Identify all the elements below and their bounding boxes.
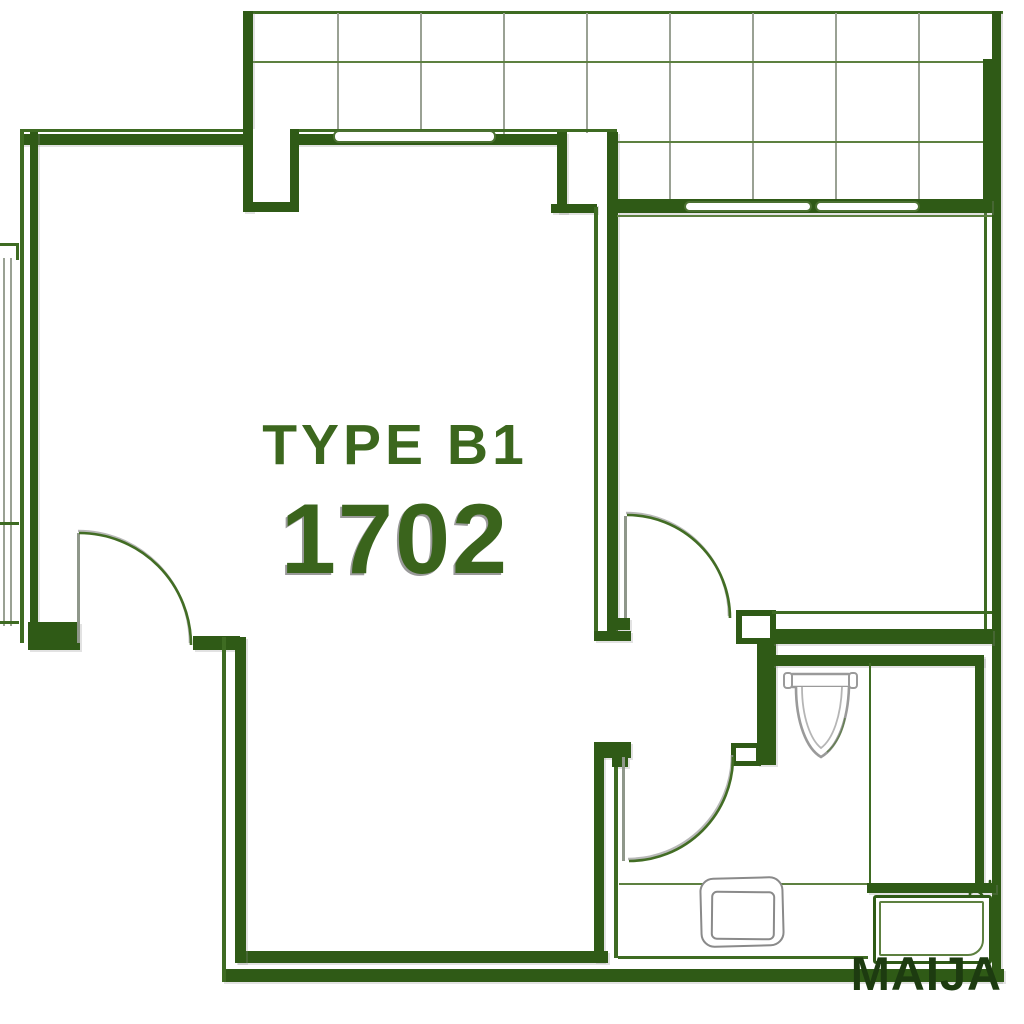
bathroom-door-arc: [629, 757, 733, 861]
entry-door-jamb: [193, 636, 240, 650]
middle-wall-inner-line: [594, 207, 598, 641]
left-wall: [30, 132, 38, 633]
door-jamb-block-lower: [731, 743, 761, 766]
living-room-window: [333, 130, 496, 143]
tub-top-wall: [867, 883, 996, 893]
top-wall-outer-line: [20, 129, 617, 132]
left-wall-outer-line: [20, 132, 24, 643]
column-pillar-right-core: [567, 133, 607, 205]
bedroom-door-arc: [627, 515, 730, 618]
right-outer-wall: [992, 11, 1001, 982]
lower-left-wall-outer-line: [222, 637, 226, 982]
middle-wall-foot: [594, 631, 631, 641]
bedroom-window-1: [684, 201, 812, 212]
balcony-grid-line: [835, 13, 837, 210]
bedroom-window-2: [815, 201, 920, 212]
entry-door-leaf: [77, 533, 80, 643]
bedroom-bottom-wall-line: [772, 611, 992, 614]
lower-left-wall: [235, 637, 246, 963]
floor-plan: TYPE B1 1702 MAIJA: [0, 0, 1024, 1024]
bathroom-right-inner-wall: [975, 657, 984, 885]
balcony-grid-line: [669, 13, 671, 210]
watermark-logo: MAIJA: [818, 946, 1002, 1001]
bedroom-window-inner-line: [617, 215, 992, 217]
bottom-wall-inner: [236, 951, 608, 963]
left-window-mullion: [0, 522, 19, 525]
entry-door-arc: [79, 533, 191, 645]
bathroom-door-leaf: [622, 757, 625, 861]
bedroom-bottom-wall: [772, 629, 993, 644]
bedroom-door-leaf: [624, 516, 627, 618]
bathroom-west-wall: [594, 756, 604, 962]
bathroom-west-wall-inner-line: [614, 767, 618, 958]
bathroom-top-wall: [772, 655, 984, 666]
left-window-sill-jog: [0, 621, 19, 624]
door-jamb-block-upper: [736, 610, 776, 644]
column-pillar-left: [243, 129, 299, 212]
left-window-pane-line: [3, 258, 5, 626]
unit-number: 1702: [230, 482, 560, 596]
balcony-grid-line: [752, 13, 754, 210]
left-window-head-jog-v: [16, 243, 19, 260]
left-window-pane-line: [10, 258, 12, 626]
column-pillar-right-left-edge: [557, 132, 567, 213]
bathroom-west-wall-step: [612, 758, 628, 767]
middle-wall-notch: [614, 618, 630, 630]
vanity-sink-inner: [711, 891, 776, 941]
toilet-icon: [783, 668, 863, 764]
top-wall-left-segment: [20, 134, 244, 145]
balcony-top-edge: [246, 11, 1003, 14]
left-wall-corner: [28, 622, 80, 650]
balcony-grid-line: [252, 61, 997, 63]
balcony-grid-line: [918, 13, 920, 210]
balcony-right-wall: [983, 59, 992, 210]
bedroom-right-wall-line: [984, 213, 987, 633]
shower-divider-line: [869, 663, 871, 884]
column-pillar-right-bottom-edge: [551, 204, 597, 213]
living-room-area: [296, 144, 558, 211]
unit-type-label: TYPE B1: [230, 412, 560, 478]
